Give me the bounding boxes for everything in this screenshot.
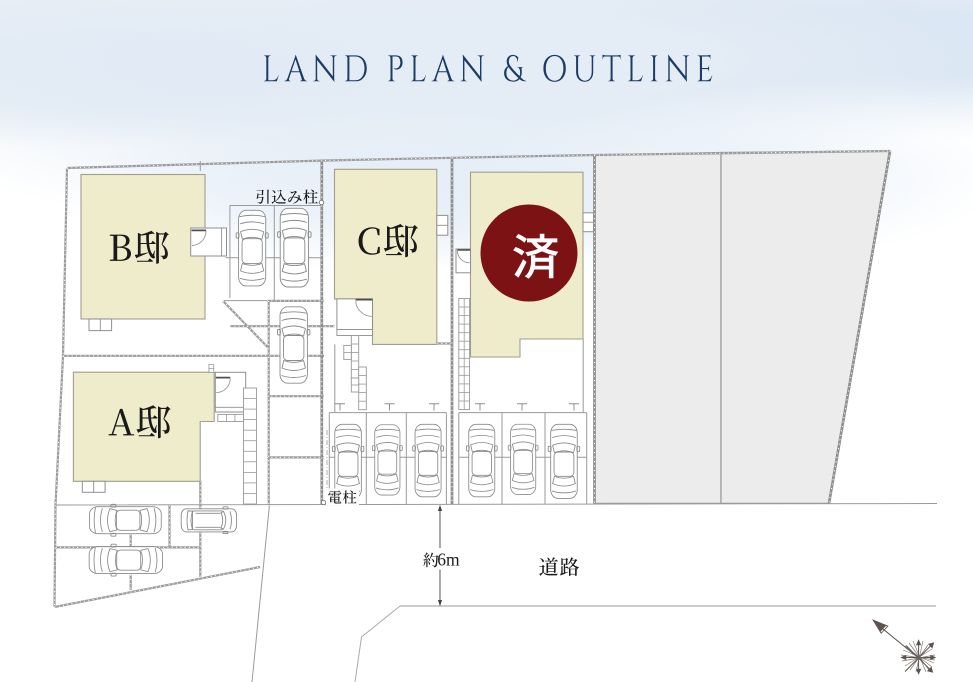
- svg-text:6m: 6m: [437, 550, 460, 570]
